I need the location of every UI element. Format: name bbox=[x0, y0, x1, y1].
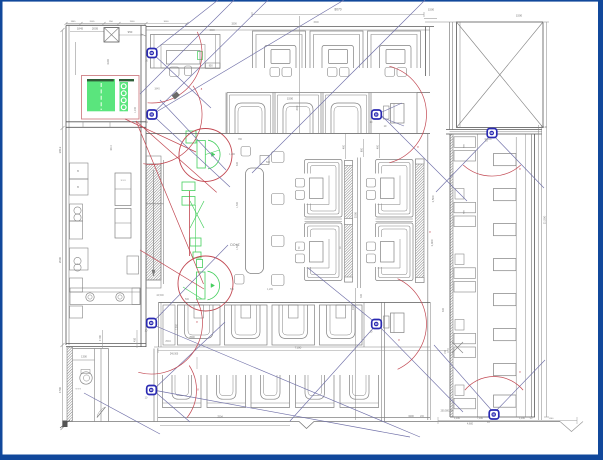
svg-text:1100: 1100 bbox=[549, 418, 554, 420]
svg-text:240,500: 240,500 bbox=[170, 354, 179, 356]
svg-text:300: 300 bbox=[360, 293, 363, 298]
svg-text:2504: 2504 bbox=[217, 416, 223, 419]
svg-text:1,100: 1,100 bbox=[454, 418, 460, 420]
svg-text:1500: 1500 bbox=[209, 29, 215, 32]
svg-text:1845: 1845 bbox=[71, 21, 77, 23]
svg-text:500: 500 bbox=[185, 298, 190, 301]
svg-text:200: 200 bbox=[420, 415, 425, 418]
svg-text:1700: 1700 bbox=[98, 335, 102, 341]
svg-text:600: 600 bbox=[361, 147, 364, 152]
svg-text:2005: 2005 bbox=[92, 27, 99, 31]
svg-text:1,200: 1,200 bbox=[267, 288, 274, 291]
svg-text:1,500: 1,500 bbox=[177, 323, 179, 329]
svg-text:400: 400 bbox=[376, 144, 379, 149]
svg-text:1,200: 1,200 bbox=[134, 106, 137, 113]
svg-text:150: 150 bbox=[444, 349, 447, 354]
svg-text:1500: 1500 bbox=[287, 97, 294, 101]
svg-text:1,500: 1,500 bbox=[431, 195, 435, 202]
svg-text:1500: 1500 bbox=[231, 23, 237, 26]
svg-text:3200: 3200 bbox=[408, 415, 414, 418]
svg-text:140: 140 bbox=[543, 126, 548, 129]
svg-text:630: 630 bbox=[236, 161, 239, 166]
svg-text:11,500: 11,500 bbox=[543, 215, 547, 224]
svg-text:7100: 7100 bbox=[295, 346, 302, 350]
svg-text:3 3 3: 3 3 3 bbox=[121, 180, 127, 182]
svg-text:1,500: 1,500 bbox=[236, 201, 239, 208]
svg-text:600: 600 bbox=[442, 307, 445, 312]
svg-text:1,500: 1,500 bbox=[236, 243, 239, 250]
svg-text:350: 350 bbox=[238, 138, 243, 141]
svg-text:8070: 8070 bbox=[334, 8, 341, 12]
svg-text:2504: 2504 bbox=[165, 340, 171, 343]
svg-text:44,500: 44,500 bbox=[156, 294, 164, 297]
svg-text:1500: 1500 bbox=[354, 211, 358, 218]
svg-text:3813: 3813 bbox=[110, 145, 113, 151]
svg-text:950: 950 bbox=[128, 30, 133, 34]
svg-text:1700: 1700 bbox=[58, 386, 62, 393]
svg-text:1,100: 1,100 bbox=[519, 418, 525, 420]
svg-text:3813: 3813 bbox=[58, 146, 62, 153]
svg-text:3000: 3000 bbox=[164, 21, 170, 23]
svg-text:2005: 2005 bbox=[90, 21, 96, 23]
svg-text:600: 600 bbox=[295, 105, 299, 110]
svg-text:1,400: 1,400 bbox=[430, 239, 434, 246]
svg-text:1500: 1500 bbox=[516, 14, 523, 18]
svg-text:2500: 2500 bbox=[189, 336, 195, 339]
svg-text:1845: 1845 bbox=[154, 88, 160, 91]
svg-text:450: 450 bbox=[134, 337, 137, 342]
svg-text:1,200: 1,200 bbox=[229, 153, 236, 156]
svg-text:? ? ?: ? ? ? bbox=[75, 388, 81, 391]
svg-text:1500: 1500 bbox=[313, 21, 319, 24]
svg-text:500: 500 bbox=[230, 288, 235, 291]
svg-text:1300: 1300 bbox=[81, 355, 87, 359]
svg-text:1500: 1500 bbox=[428, 8, 435, 12]
svg-text:1500: 1500 bbox=[130, 21, 136, 23]
svg-text:400: 400 bbox=[343, 144, 346, 149]
svg-text:500: 500 bbox=[266, 161, 271, 164]
svg-text:±0,000: ±0,000 bbox=[484, 138, 492, 141]
svg-text:7,100: 7,100 bbox=[477, 418, 483, 420]
svg-text:1845: 1845 bbox=[77, 27, 84, 31]
svg-text:4,600: 4,600 bbox=[467, 423, 474, 426]
svg-text:200,500,500: 200,500,500 bbox=[441, 411, 454, 413]
svg-text:2000: 2000 bbox=[58, 256, 62, 263]
svg-text:3100: 3100 bbox=[107, 59, 110, 65]
